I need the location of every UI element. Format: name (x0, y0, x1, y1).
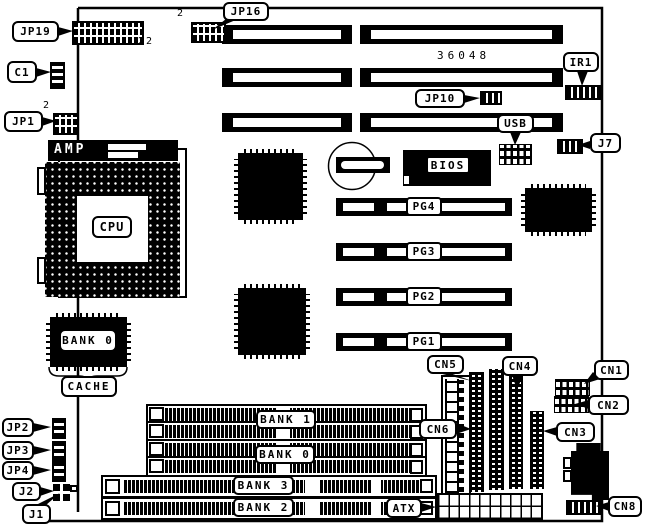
cn8-connector (566, 500, 603, 515)
cpu-label: CPU (92, 216, 132, 238)
socket-lever-tab (37, 167, 46, 195)
callout-cn6: CN6 (419, 419, 457, 439)
dimm-bank-label: BANK 3 (233, 476, 294, 495)
jp16-pin-number: 2 (177, 8, 183, 19)
battery-clip-inner (341, 161, 384, 169)
keyboard-connector (571, 443, 609, 500)
bios-chip-notch (404, 176, 409, 184)
callout-jp4: JP4 (2, 461, 34, 480)
jp4-jumper (52, 461, 66, 482)
jp1-header (53, 113, 79, 135)
c1-component (50, 62, 65, 89)
atx-power-connector (436, 493, 543, 521)
qfp-chip (238, 288, 306, 355)
amp-slot-b (108, 152, 138, 158)
jp16-header (191, 22, 226, 43)
pci-slot-label: PG2 (406, 287, 442, 306)
cn2-header (554, 396, 589, 413)
board-part-number: 36048 (437, 49, 490, 62)
amp-slot-a (108, 144, 146, 150)
qfp-chip (238, 153, 303, 220)
cn3-connector (530, 411, 544, 489)
callout-j2: J2 (12, 482, 41, 501)
pci-slot-label: PG1 (406, 332, 442, 351)
isa-slot (222, 25, 352, 44)
callout-cn5: CN5 (427, 355, 464, 374)
keyboard-connector-tab (563, 457, 572, 469)
keyboard-connector-tab (563, 470, 572, 482)
jp1-pin-number: 2 (43, 100, 49, 111)
callout-atx: ATX (386, 498, 422, 518)
cn5-connector (469, 372, 484, 492)
callout-ir1: IR1 (563, 52, 599, 72)
callout-j1: J1 (22, 504, 51, 524)
jp3-jumper (52, 441, 66, 462)
cn1-header (555, 379, 590, 396)
pci-slot: PG4 (336, 198, 512, 216)
simm-bank-label: BANK 0 (255, 445, 315, 464)
pci-slot: PG2 (336, 288, 512, 306)
callout-j7: J7 (590, 133, 621, 153)
callout-cn4: CN4 (502, 356, 538, 376)
socket-lever-tab (37, 257, 46, 284)
jp19-header (72, 21, 144, 45)
qfp-chip (525, 188, 592, 232)
callout-jp2: JP2 (2, 418, 34, 437)
jp10-jumper (480, 91, 502, 105)
cache-label: CACHE (61, 376, 117, 397)
ir1-connector (565, 85, 603, 100)
pci-slot: PG3 (336, 243, 512, 261)
isa-slot (222, 113, 352, 132)
callout-jp3: JP3 (2, 441, 34, 460)
pin-connector (489, 369, 504, 490)
j7-jumper (557, 139, 583, 154)
bios-label: BIOS (426, 156, 470, 174)
pci-slot: PG1 (336, 333, 512, 351)
cn4-connector (509, 374, 523, 489)
callout-cn3: CN3 (556, 422, 595, 442)
isa-slot (360, 25, 563, 44)
callout-jp19: JP19 (12, 21, 59, 42)
cache-bank-label: BANK 0 (59, 329, 117, 352)
callout-jp16: JP16 (223, 2, 269, 21)
simm-bank-label: BANK 1 (256, 410, 316, 429)
motherboard-diagram: 36048 JP19 22 C1 2 JP1 2 JP16 IR1 JP10 U… (0, 0, 651, 529)
dimm-bank-label: BANK 2 (233, 498, 294, 517)
pci-slot-label: PG3 (406, 242, 442, 261)
j2-connector-tab (70, 485, 78, 492)
callout-cn2: CN2 (588, 395, 629, 415)
callout-cn8: CN8 (608, 496, 642, 517)
jp2-jumper (52, 418, 66, 439)
amp-label: AMP (54, 142, 86, 157)
jp19-pin-count: 22 (138, 36, 154, 47)
pci-slot-label: PG4 (406, 197, 442, 216)
callout-usb: USB (497, 114, 534, 133)
usb-header (499, 144, 532, 165)
isa-slot (222, 68, 352, 87)
isa-slot (360, 68, 563, 87)
callout-c1: C1 (7, 61, 37, 83)
callout-jp1: JP1 (4, 111, 43, 132)
callout-jp10: JP10 (415, 89, 465, 108)
j2-connector (53, 483, 71, 501)
callout-cn1: CN1 (594, 360, 629, 380)
